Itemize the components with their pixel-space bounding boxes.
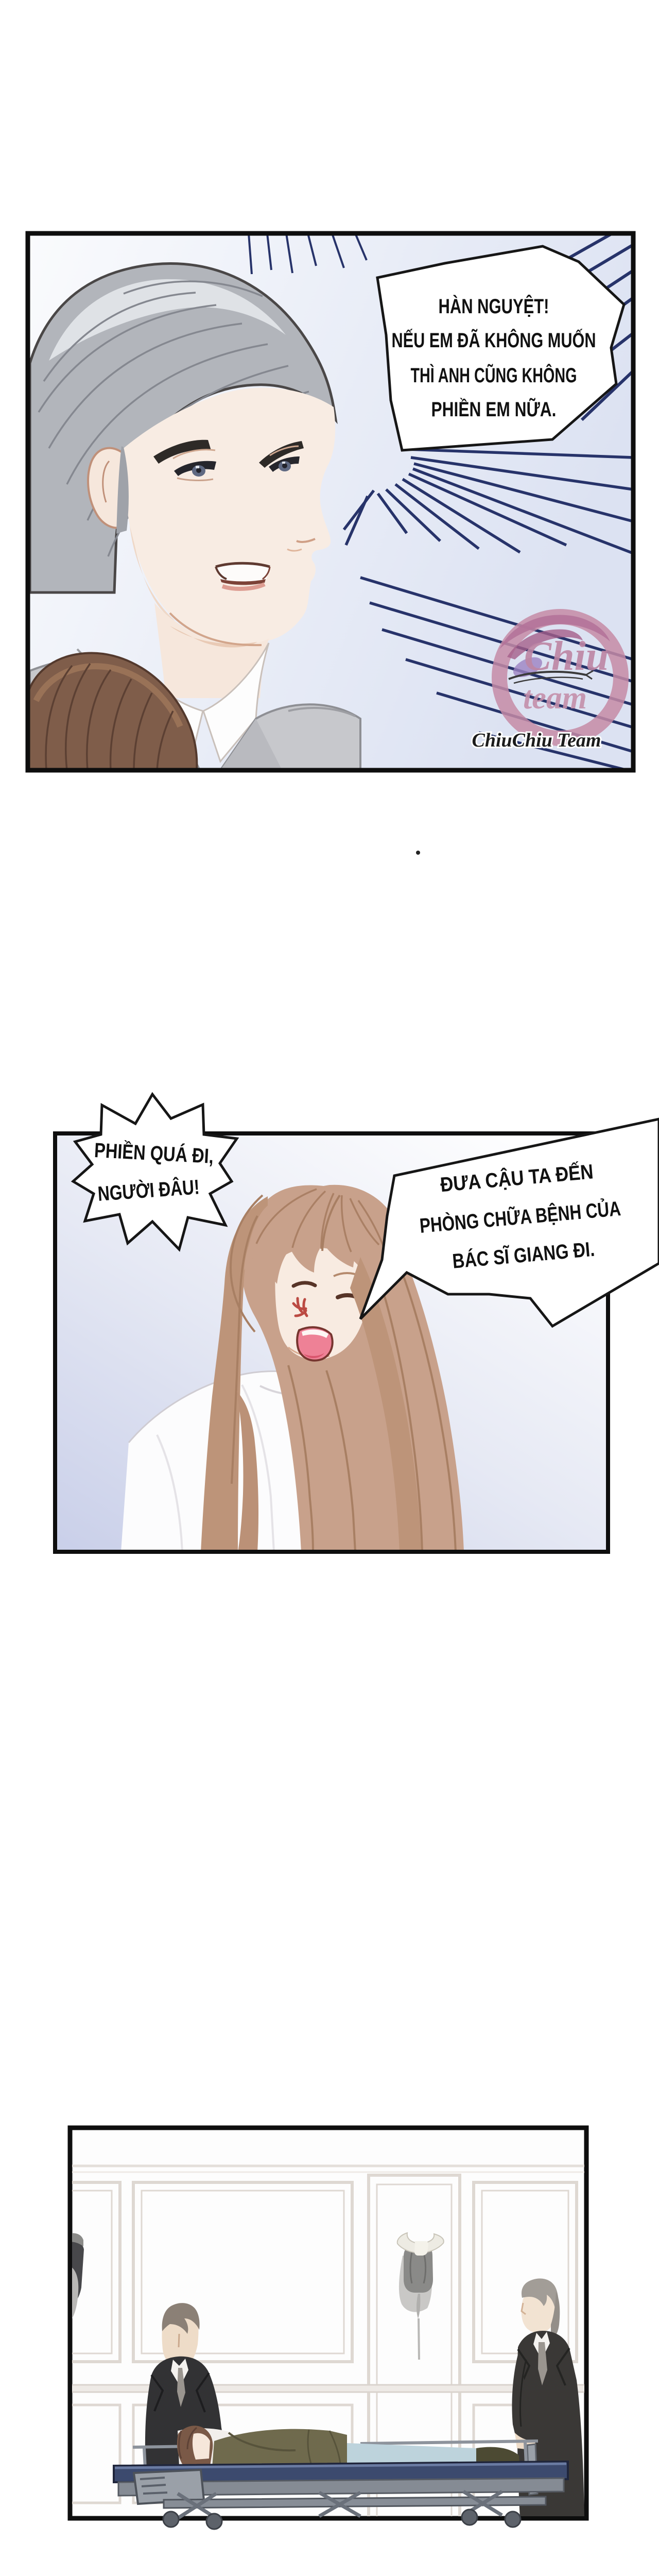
svg-text:NẾU EM ĐÃ KHÔNG MUỐN: NẾU EM ĐÃ KHÔNG MUỐN [392, 328, 596, 352]
svg-text:team: team [523, 681, 587, 716]
svg-text:THÌ ANH CŨNG KHÔNG: THÌ ANH CŨNG KHÔNG [411, 363, 577, 387]
svg-text:PHIỀN EM NỮA.: PHIỀN EM NỮA. [431, 397, 557, 421]
svg-text:ChiuChiu Team: ChiuChiu Team [472, 730, 601, 751]
svg-text:HÀN NGUYỆT!: HÀN NGUYỆT! [439, 294, 549, 318]
